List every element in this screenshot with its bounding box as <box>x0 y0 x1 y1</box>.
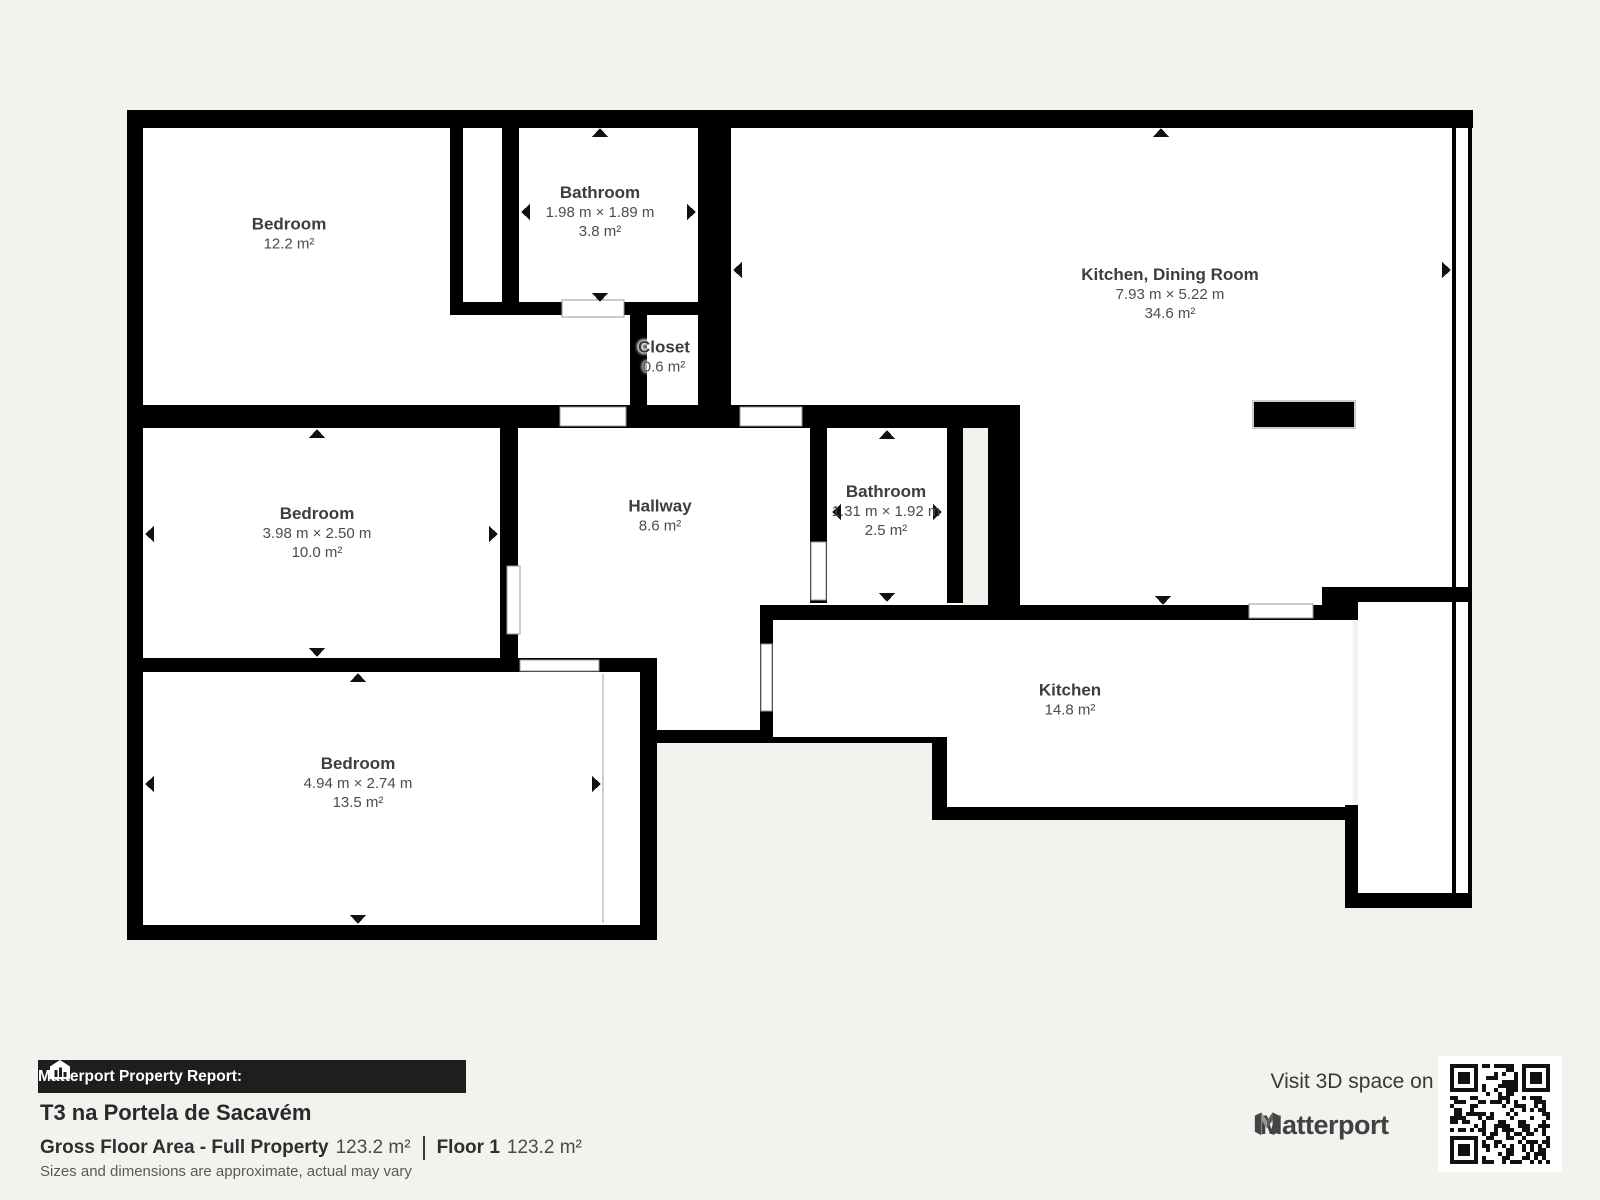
window-line <box>1468 117 1472 908</box>
door-hallway-dining <box>740 407 802 426</box>
floor-label: Floor 1 <box>437 1137 500 1159</box>
door-bathroom-2 <box>811 542 826 600</box>
wall <box>127 110 1473 128</box>
wall <box>760 605 1322 620</box>
floor-value: 123.2 m² <box>507 1137 582 1159</box>
wall-thin <box>773 737 947 743</box>
room-niche <box>463 128 502 302</box>
wall <box>1322 587 1358 620</box>
wall <box>932 807 1358 820</box>
door-kitchen-dining <box>1249 604 1313 618</box>
room-interiors <box>143 117 1472 925</box>
wall <box>1345 805 1358 908</box>
room-bedroom-1-vestibule <box>450 315 630 405</box>
floor-area-line: Gross Floor Area - Full Property 123.2 m… <box>40 1136 582 1160</box>
wall <box>463 302 502 315</box>
matterport-logo: Matterport <box>1252 1110 1389 1141</box>
room-closet <box>647 315 700 405</box>
wardrobe-line <box>602 674 604 923</box>
room-kitchen-b <box>947 738 1353 807</box>
wall <box>657 730 773 743</box>
void-shaft <box>963 428 988 605</box>
wall <box>127 405 731 428</box>
room-kitchen-c <box>1358 602 1453 893</box>
door-bedroom-1 <box>560 407 626 426</box>
room-bedroom-1 <box>143 128 450 405</box>
wall <box>127 925 657 940</box>
divider <box>423 1136 425 1160</box>
room-bathroom-2 <box>827 428 947 603</box>
wall <box>1358 893 1472 908</box>
qr-code <box>1438 1056 1562 1172</box>
window-line <box>1452 128 1456 893</box>
wall <box>450 128 463 315</box>
report-banner: Matterport Property Report: <box>38 1060 466 1093</box>
floor-plan <box>0 0 1600 1200</box>
room-kitchen-a <box>773 620 1353 738</box>
wall <box>502 128 519 315</box>
room-bedroom-3 <box>143 672 640 925</box>
room-bathroom-1 <box>519 128 698 302</box>
wall <box>127 110 143 940</box>
room-hallway-strip <box>640 605 760 730</box>
wall <box>698 110 731 428</box>
door-bedroom-3 <box>520 660 599 671</box>
room-bedroom-2 <box>143 428 500 658</box>
wall <box>947 428 963 603</box>
door-bedroom-2 <box>507 566 520 634</box>
wall <box>640 658 657 940</box>
property-title: T3 na Portela de Sacavém <box>40 1100 311 1126</box>
door-kitchen-hallway <box>761 644 772 711</box>
matterport-mark-icon <box>1252 1110 1282 1138</box>
house-report-icon <box>50 1060 70 1079</box>
gfa-label: Gross Floor Area - Full Property <box>40 1137 329 1159</box>
disclaimer-text: Sizes and dimensions are approximate, ac… <box>40 1163 412 1180</box>
wall <box>988 428 1020 620</box>
floor-plan-report: Bedroom12.2 m²Bathroom1.98 m × 1.89 m3.8… <box>0 0 1600 1200</box>
door-bathroom-1 <box>562 300 624 317</box>
wall <box>630 315 647 405</box>
qr-pattern <box>1438 1056 1562 1172</box>
counter-block <box>1253 401 1355 428</box>
visit-3d-text: Visit 3D space on <box>1252 1070 1452 1094</box>
gfa-value: 123.2 m² <box>336 1137 411 1159</box>
room-hallway-lower <box>518 428 640 658</box>
